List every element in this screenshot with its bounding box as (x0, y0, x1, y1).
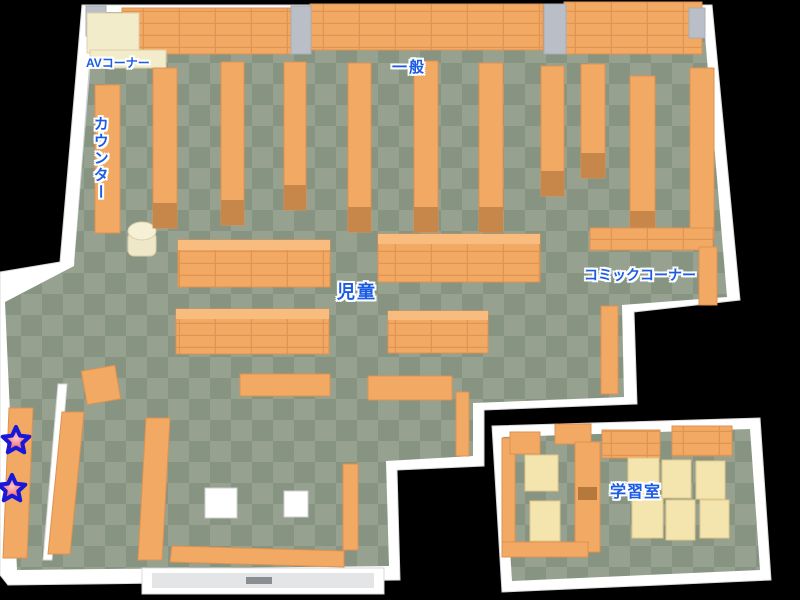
bookshelf (221, 62, 244, 225)
bookshelf (699, 247, 717, 305)
display-stand (205, 488, 237, 518)
pillar (291, 6, 311, 54)
bookshelf (502, 438, 515, 556)
study-table (700, 500, 729, 538)
bookshelf (590, 228, 713, 250)
bookshelf (378, 234, 540, 282)
library-floor-map: AVコーナー 一般 カウンター 児童 コミックコーナー 学習室 (0, 0, 800, 600)
bookshelf (690, 68, 714, 238)
display-stand (284, 491, 308, 517)
bookshelf (388, 311, 488, 353)
study-table (530, 501, 560, 541)
bookshelf (178, 240, 330, 287)
map-canvas (0, 0, 800, 600)
study-table (525, 455, 558, 491)
bookshelf (153, 68, 177, 228)
bookshelf (240, 374, 330, 396)
bookshelf (176, 309, 329, 354)
bookshelf (672, 426, 732, 456)
pillar (689, 8, 705, 38)
bookshelf (284, 62, 306, 210)
bookshelf (310, 4, 543, 50)
bookshelf (581, 64, 605, 178)
bookshelf (510, 432, 540, 454)
bookshelf (601, 306, 618, 394)
top-wall-shelves (86, 2, 705, 54)
bookshelf (630, 76, 655, 236)
study-table (662, 460, 691, 498)
label-study-room: 学習室 (610, 485, 661, 502)
divider-shelf (575, 442, 600, 552)
entrance (142, 568, 384, 594)
label-comic-corner: コミックコーナー (584, 268, 696, 283)
label-children: 児童 (337, 283, 377, 302)
bookshelf (456, 392, 469, 456)
label-counter: カウンター (92, 116, 108, 201)
bookshelf (502, 542, 588, 557)
bookshelf (343, 464, 358, 550)
label-general: 一般 (392, 60, 426, 76)
bookshelf (122, 8, 298, 54)
tilted-table (81, 365, 120, 404)
label-av-corner: AVコーナー (86, 57, 150, 70)
bookshelf (348, 63, 371, 232)
study-room-building (492, 418, 771, 592)
study-table (666, 500, 695, 540)
bookshelf (564, 2, 702, 54)
bookshelf (368, 376, 452, 400)
round-rack (128, 222, 156, 256)
study-table (696, 461, 725, 499)
bookshelf (602, 430, 660, 458)
entrance-door (246, 577, 272, 584)
bookshelf (479, 63, 503, 232)
bookshelf (555, 424, 591, 444)
bookshelf (541, 66, 564, 196)
study-table (632, 498, 663, 538)
pillar (544, 4, 566, 54)
bookshelf (414, 61, 438, 232)
